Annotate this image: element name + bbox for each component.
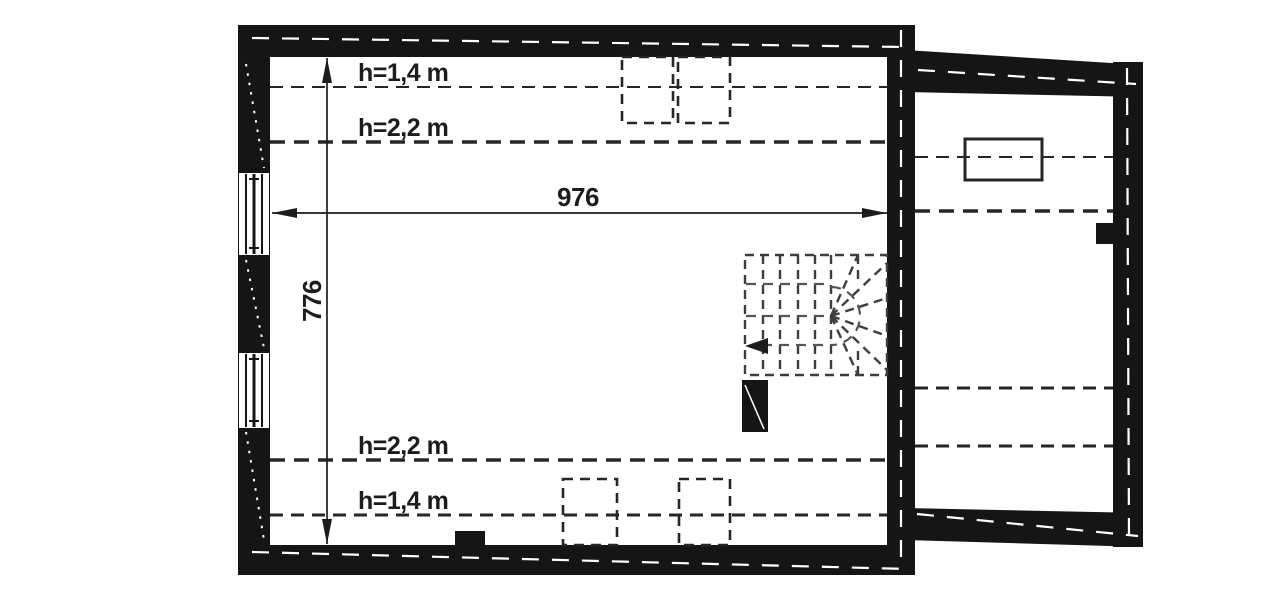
label-h22-bottom: h=2,2 m <box>358 432 448 460</box>
window-1 <box>239 173 269 255</box>
roof-window-top-2 <box>678 57 730 123</box>
stair-direction-arrow <box>745 338 768 354</box>
main-left-wall <box>238 25 270 575</box>
annex-bottom-wall <box>905 508 1143 547</box>
annex-top-wall <box>905 50 1143 97</box>
dim-height-arrow-top <box>322 58 332 83</box>
annex-wall-block <box>1096 223 1120 244</box>
stair-walk-arc <box>831 287 860 345</box>
dim-height-arrow-bottom <box>322 519 332 544</box>
roof-window-bottom-2 <box>679 479 730 545</box>
dim-height-value: 776 <box>297 280 327 322</box>
main-top-wall <box>238 25 915 57</box>
main-bottom-wall <box>238 545 915 575</box>
floor-plan-canvas: 976 776 h=1,4 m h=2,2 m h=2,2 m h=1,4 m <box>0 0 1280 602</box>
roof-window-top-1 <box>622 57 673 123</box>
stair-winder-1 <box>831 255 858 316</box>
window-2 <box>239 353 269 428</box>
staircase <box>745 255 887 375</box>
bottom-wall-pier <box>455 531 485 546</box>
label-h14-bottom: h=1,4 m <box>358 487 448 515</box>
label-h22-top: h=2,2 m <box>358 114 448 142</box>
annex-skylight <box>965 139 1042 180</box>
dim-width-arrow-left <box>272 208 297 218</box>
dim-width-value: 976 <box>557 182 599 212</box>
height-labels: h=1,4 m h=2,2 m h=2,2 m h=1,4 m <box>358 59 448 515</box>
label-h14-top: h=1,4 m <box>358 59 448 87</box>
roof-window-bottom-1 <box>563 479 617 545</box>
dim-width-arrow-right <box>862 208 887 218</box>
roof-windows <box>563 57 1042 545</box>
floor-plan-drawing: 976 776 h=1,4 m h=2,2 m h=2,2 m h=1,4 m <box>0 0 1280 602</box>
